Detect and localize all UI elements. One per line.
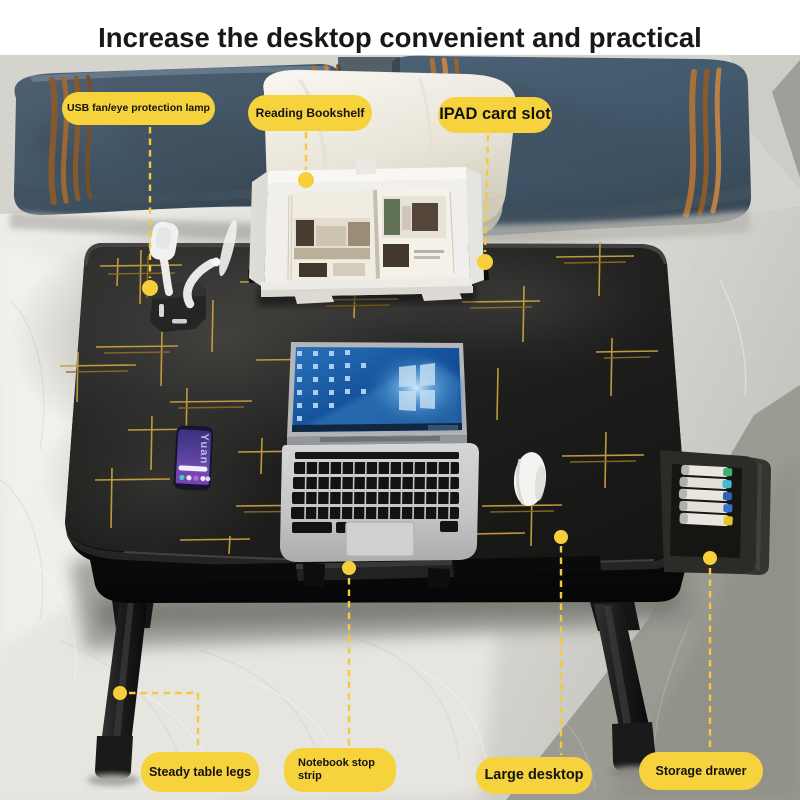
svg-text:Yuan: Yuan (198, 433, 211, 464)
